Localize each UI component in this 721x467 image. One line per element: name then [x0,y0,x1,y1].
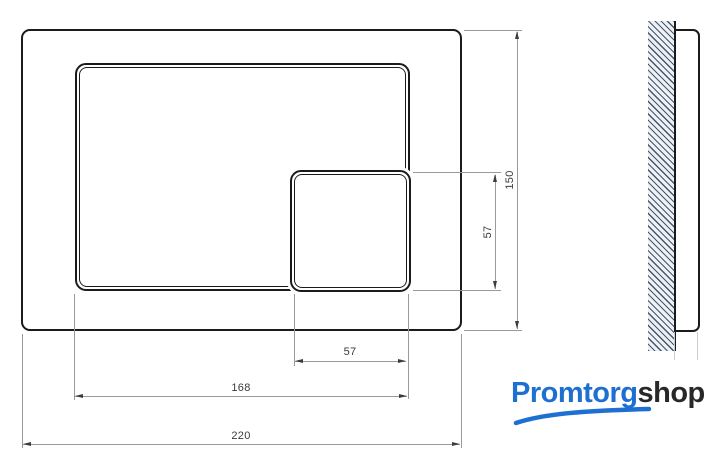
logo-wordmark: Promtorgshop [511,379,705,408]
dimension-label-overall-width: 220 [231,430,250,442]
dimension-line [517,32,518,329]
extension-line [464,330,522,331]
arrowhead-right-icon [398,359,406,363]
dimension-label-overall-height: 150 [504,170,516,189]
arrowhead-left-icon [75,394,83,398]
arrowhead-right-icon [452,442,460,446]
arrowhead-left-icon [23,442,31,446]
dimension-line [495,175,496,289]
arrowhead-down-icon [515,321,519,329]
arrowhead-up-icon [515,31,519,39]
hidden-edge-line [674,332,675,360]
extension-line [408,294,409,399]
logo-text-secondary: shop [638,377,705,409]
extension-line [294,294,295,366]
dimension-label-small-button-height: 57 [482,226,494,239]
extension-line [413,172,501,173]
plate-profile-outline [674,29,700,332]
hidden-edge-line [697,332,698,360]
extension-line [22,334,23,448]
logo-swoosh-icon [513,406,653,428]
dimension-label-large-button-width: 168 [231,382,250,394]
dimension-label-small-button-width: 57 [344,346,357,358]
extension-line [461,334,462,448]
arrowhead-right-icon [399,394,407,398]
dimension-line [23,444,460,445]
dimension-line [295,361,406,362]
small-flush-button-outline [290,170,411,292]
technical-drawing-canvas: 150 57 57 168 220 [0,0,721,467]
arrowhead-up-icon [493,174,497,182]
arrowhead-down-icon [493,281,497,289]
extension-line [464,30,522,31]
logo-text-primary: Promtorg [511,377,638,409]
wall-hatch-pattern [648,21,675,351]
arrowhead-left-icon [295,359,303,363]
extension-line [413,290,501,291]
extension-line [74,294,75,400]
promtorgshop-logo: Promtorgshop [511,379,705,408]
dimension-line [75,396,407,397]
